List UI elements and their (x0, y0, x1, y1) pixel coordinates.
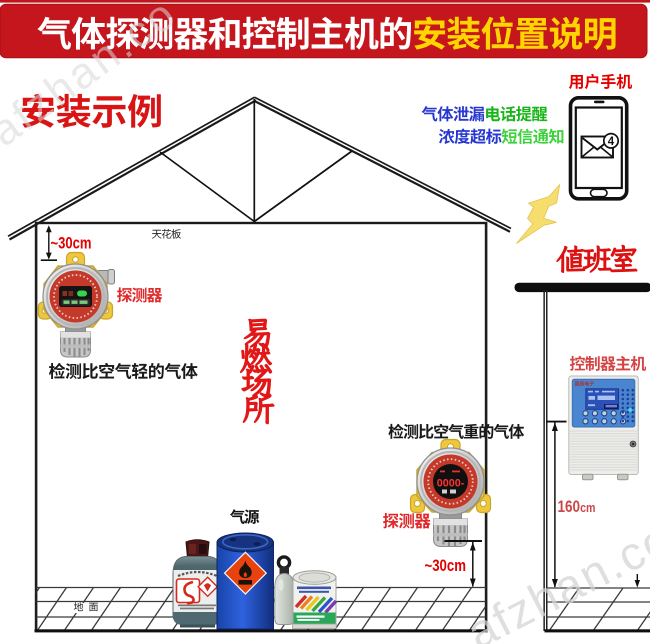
svg-text:~30cm: ~30cm (425, 557, 467, 575)
svg-text:160cm: 160cm (558, 498, 596, 516)
svg-text:0000-: 0000- (437, 478, 465, 490)
svg-text:4: 4 (608, 136, 615, 148)
svg-text:~30cm: ~30cm (51, 234, 92, 253)
